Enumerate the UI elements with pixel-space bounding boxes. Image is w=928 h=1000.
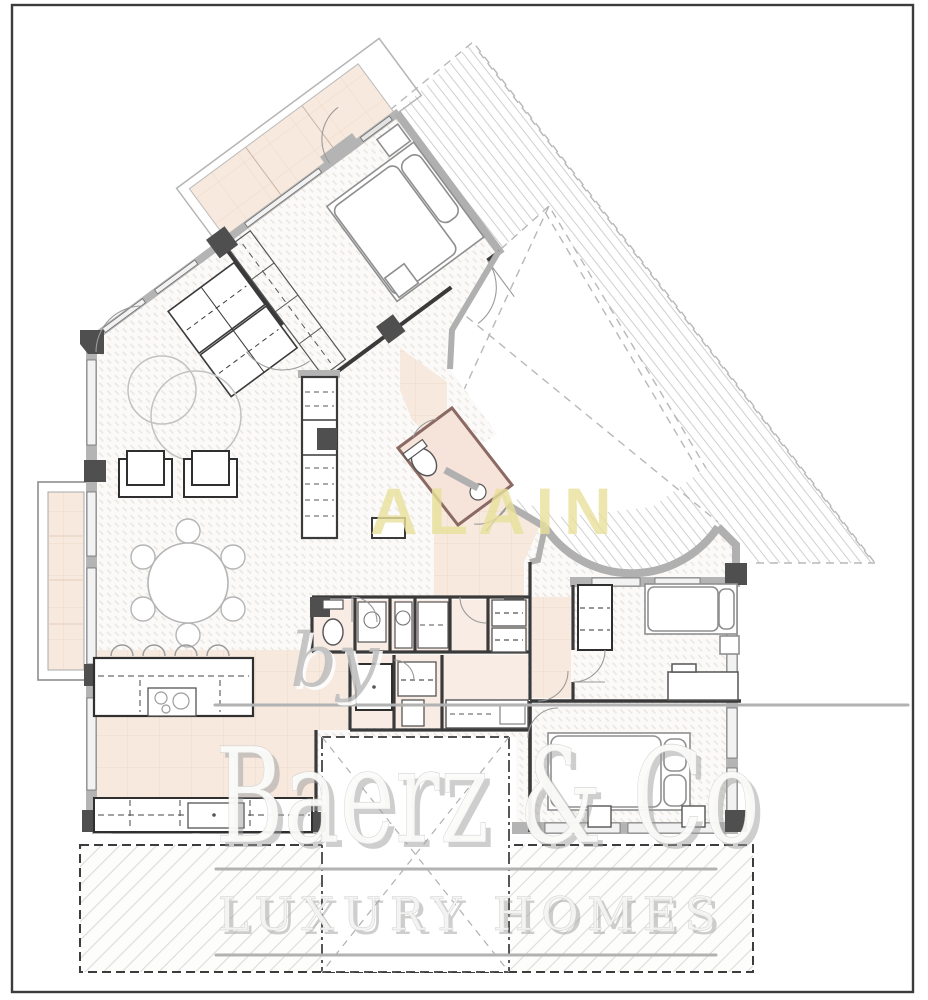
brand-name: Baerz & Co <box>215 720 760 874</box>
floorplan-page: by by Baerz & Co Baerz & Co LUXURY HOMES… <box>0 0 928 1000</box>
laundry-closet <box>492 600 526 652</box>
brand-by: by <box>290 618 380 704</box>
agent-watermark: ALAIN <box>370 474 622 548</box>
dining-table <box>148 543 228 623</box>
wardrobe <box>578 585 612 650</box>
floorplan-drawing: by by Baerz & Co Baerz & Co LUXURY HOMES… <box>0 0 928 1000</box>
left-balcony <box>38 482 90 680</box>
